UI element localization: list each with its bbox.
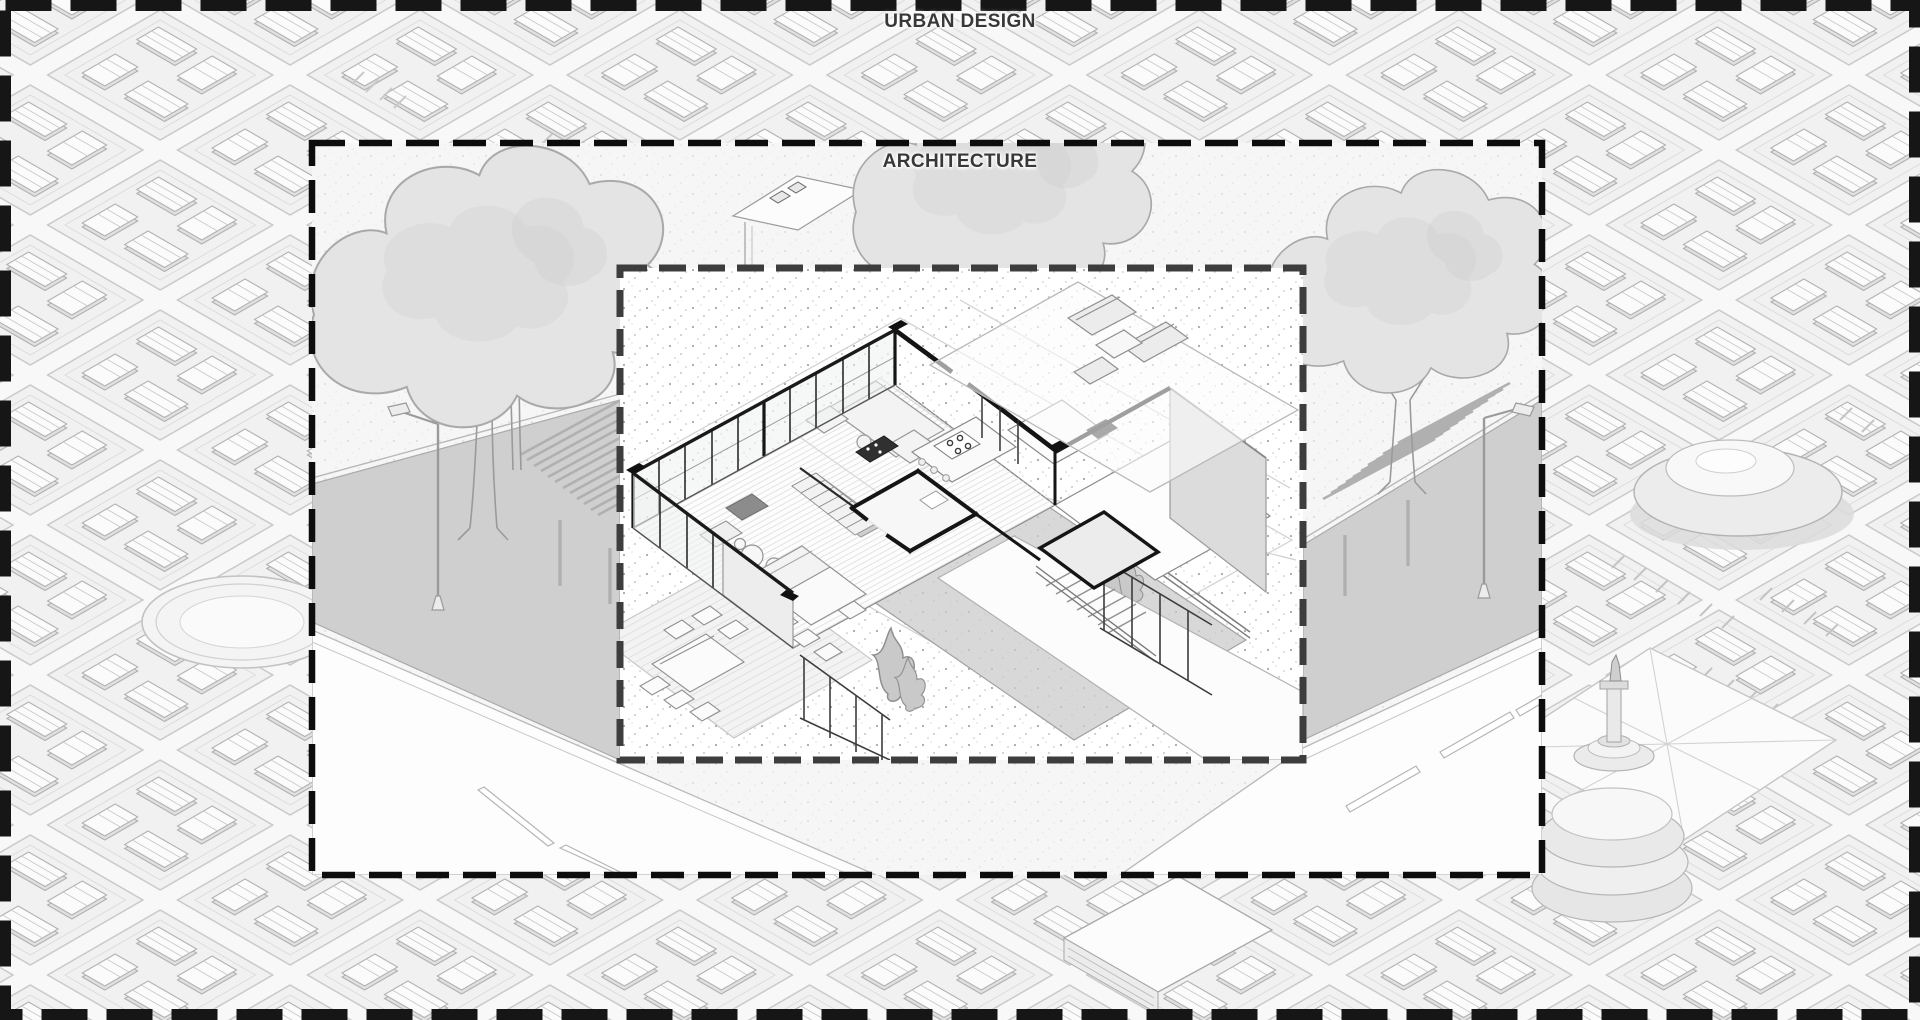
urban-design-illustration: URBAN DESIGN ARCHITECTURE (0, 0, 1920, 1020)
urban-design-label: URBAN DESIGN (0, 11, 1920, 33)
interior-vignette (598, 268, 1303, 760)
architecture-label: ARCHITECTURE (0, 151, 1920, 173)
round-tiered-building (1532, 788, 1692, 922)
bar-stool (919, 459, 926, 466)
